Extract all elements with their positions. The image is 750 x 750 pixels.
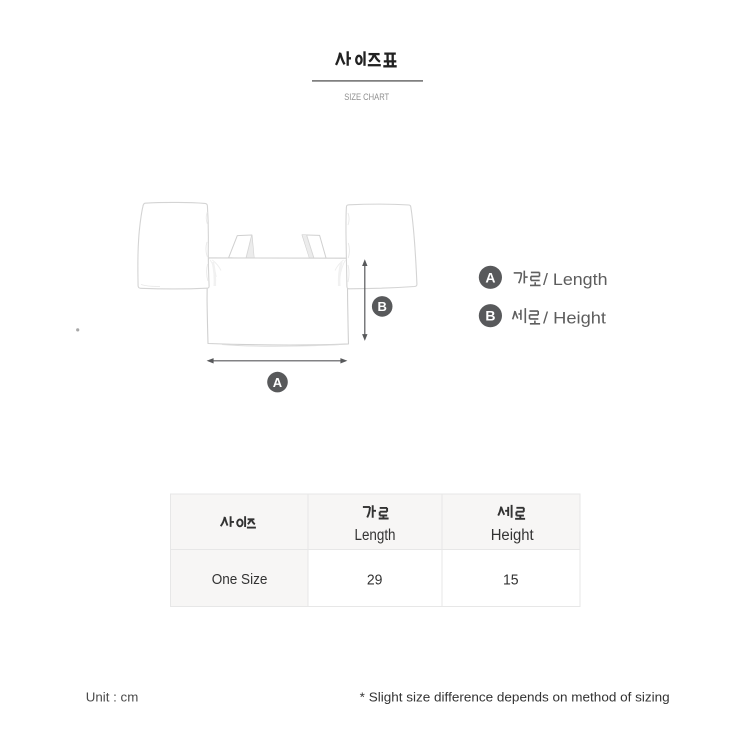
svg-text:A: A — [485, 269, 495, 285]
svg-text:SIZE CHART: SIZE CHART — [344, 92, 389, 103]
svg-text:/ Height: / Height — [543, 309, 606, 328]
svg-text:B: B — [378, 299, 387, 314]
svg-text:A: A — [273, 375, 283, 390]
svg-text:One Size: One Size — [212, 571, 268, 588]
svg-text:29: 29 — [367, 572, 383, 589]
svg-text:Unit : cm: Unit : cm — [86, 690, 139, 704]
svg-text:Length: Length — [355, 527, 396, 544]
svg-text:15: 15 — [503, 572, 519, 589]
svg-text:Height: Height — [491, 527, 535, 544]
svg-text:B: B — [485, 308, 495, 324]
svg-text:/ Length: / Length — [543, 270, 608, 289]
svg-text:* Slight size difference depen: * Slight size difference depends on meth… — [360, 690, 670, 705]
